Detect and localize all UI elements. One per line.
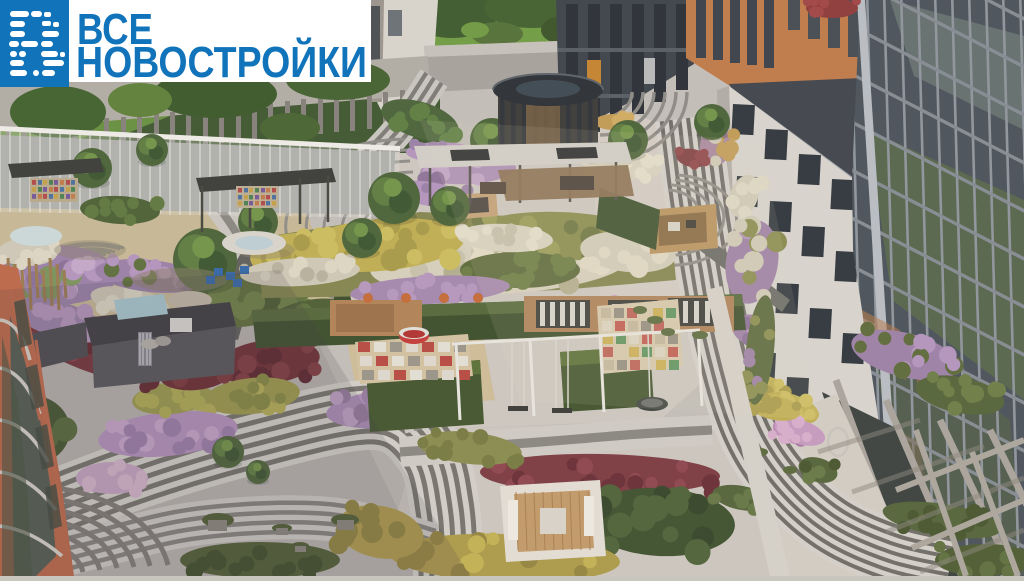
svg-text:НОВОСТРОЙКИ: НОВОСТРОЙКИ [76,36,367,87]
